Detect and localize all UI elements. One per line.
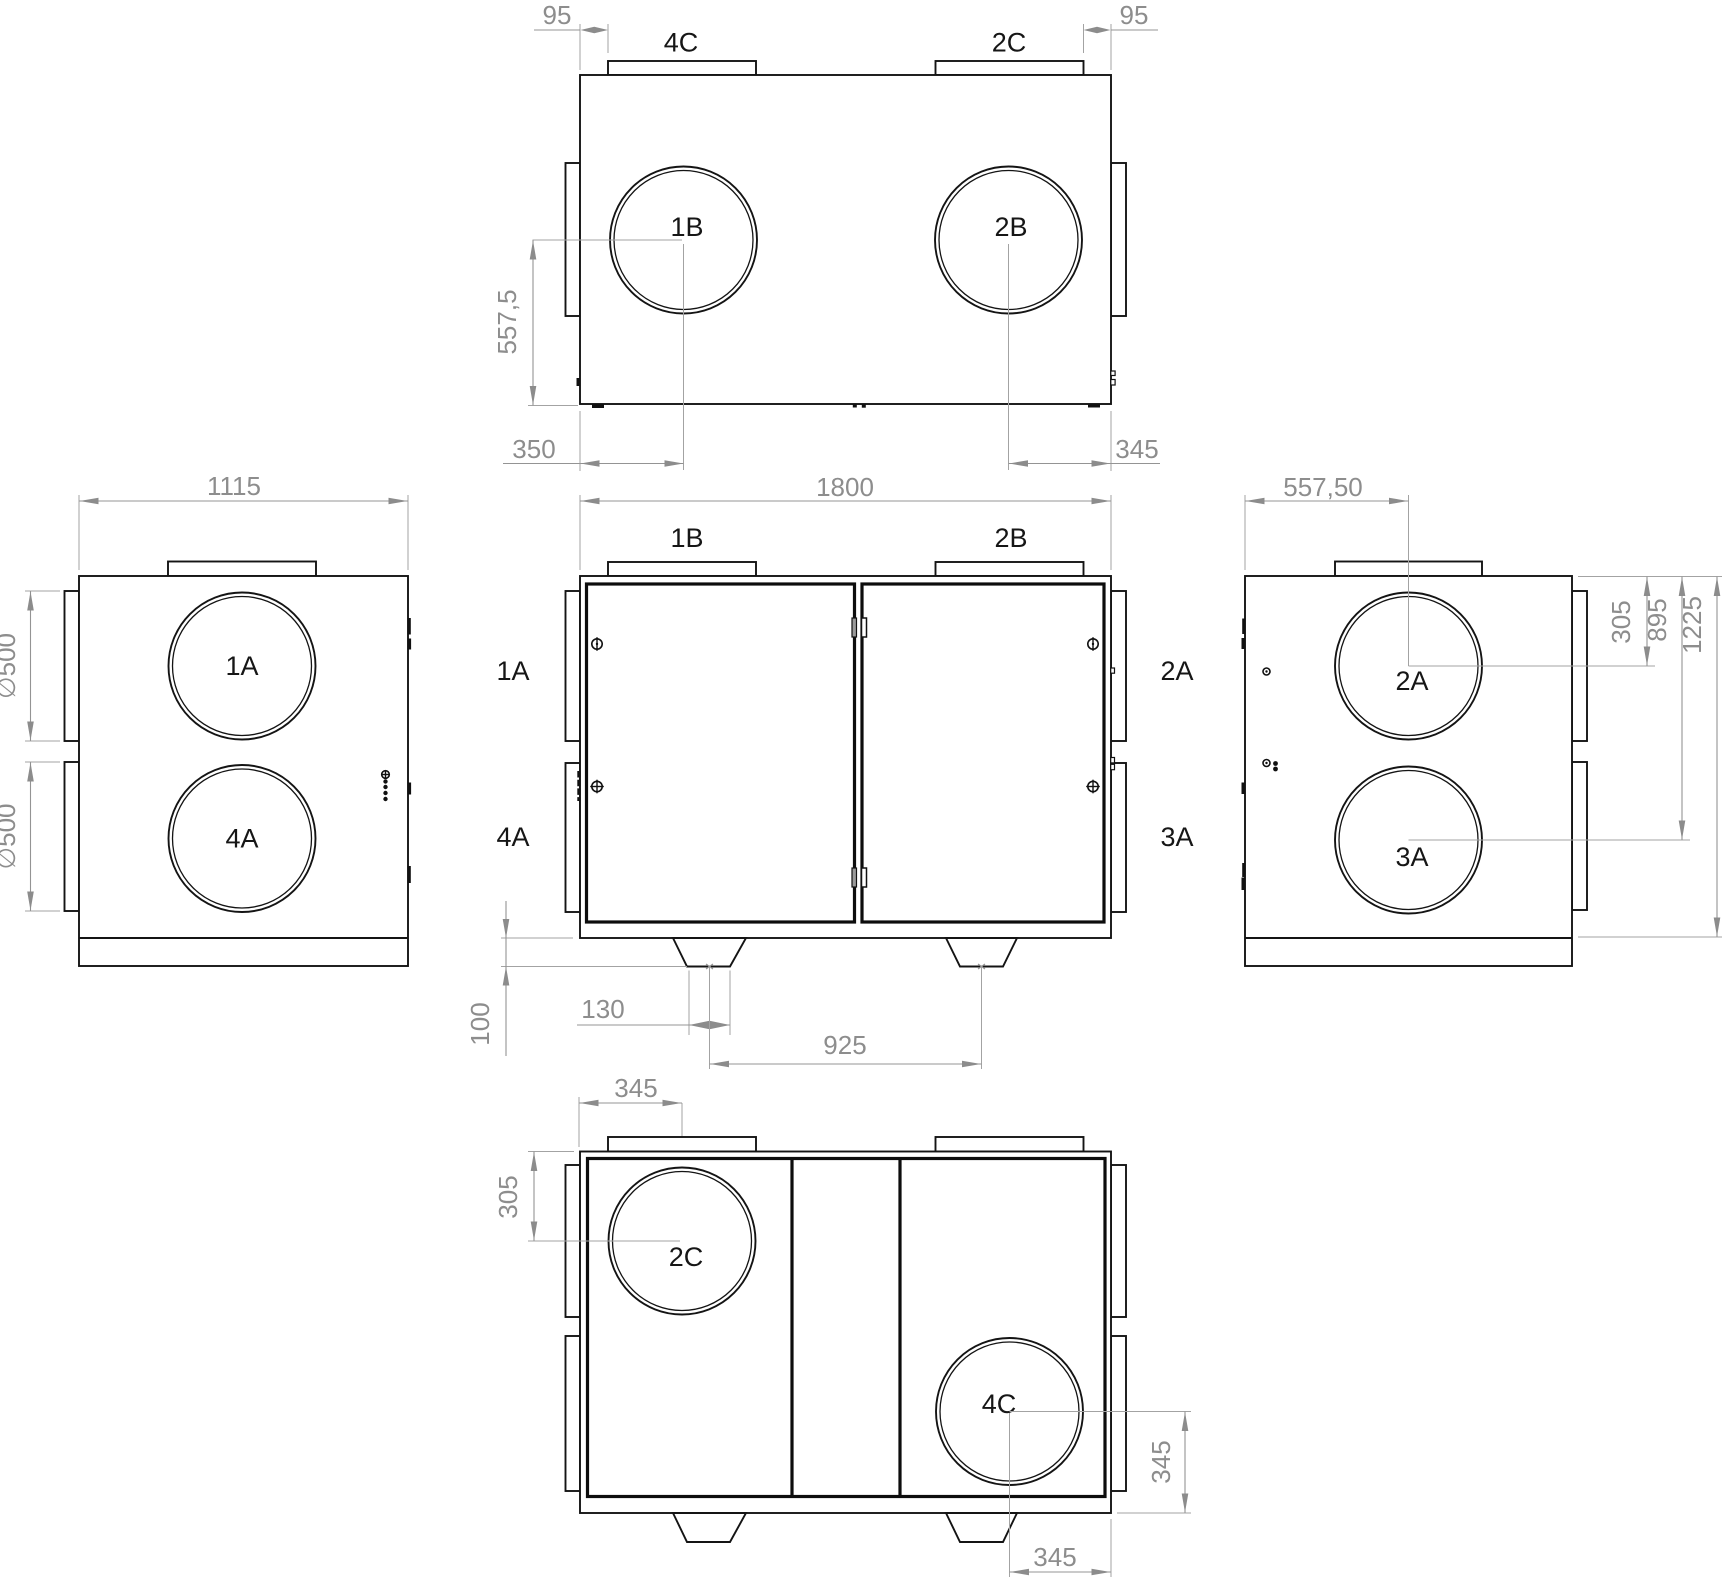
svg-text:305: 305: [493, 1175, 523, 1218]
svg-text:100: 100: [465, 1002, 495, 1045]
svg-text:3A: 3A: [1395, 842, 1428, 872]
svg-text:4C: 4C: [982, 1389, 1017, 1419]
svg-text:1A: 1A: [225, 651, 258, 681]
svg-text:1A: 1A: [496, 656, 529, 686]
svg-text:557,50: 557,50: [1283, 472, 1363, 502]
svg-text:2B: 2B: [994, 523, 1027, 553]
svg-text:345: 345: [1115, 434, 1158, 464]
svg-text:1B: 1B: [670, 523, 703, 553]
svg-text:1800: 1800: [816, 472, 874, 502]
svg-text:305: 305: [1606, 600, 1636, 643]
svg-text:∅500: ∅500: [0, 803, 21, 869]
svg-text:4A: 4A: [496, 822, 529, 852]
svg-text:2B: 2B: [994, 212, 1027, 242]
svg-text:345: 345: [1146, 1440, 1176, 1483]
svg-text:345: 345: [1033, 1542, 1076, 1572]
svg-text:95: 95: [543, 0, 572, 30]
svg-text:4C: 4C: [664, 28, 699, 58]
svg-text:925: 925: [823, 1030, 866, 1060]
svg-text:557,5: 557,5: [492, 289, 522, 354]
svg-text:2A: 2A: [1160, 656, 1193, 686]
svg-text:95: 95: [1120, 0, 1149, 30]
svg-text:345: 345: [614, 1073, 657, 1103]
svg-text:1225: 1225: [1677, 596, 1707, 654]
svg-text:1B: 1B: [670, 212, 703, 242]
svg-text:4A: 4A: [225, 824, 258, 854]
svg-text:2C: 2C: [992, 28, 1027, 58]
svg-text:2A: 2A: [1395, 666, 1428, 696]
svg-text:2C: 2C: [669, 1242, 704, 1272]
svg-text:895: 895: [1642, 598, 1672, 641]
svg-text:130: 130: [581, 994, 624, 1024]
svg-text:∅500: ∅500: [0, 633, 21, 699]
svg-text:1115: 1115: [207, 471, 261, 501]
svg-text:350: 350: [512, 434, 555, 464]
svg-text:3A: 3A: [1160, 822, 1193, 852]
